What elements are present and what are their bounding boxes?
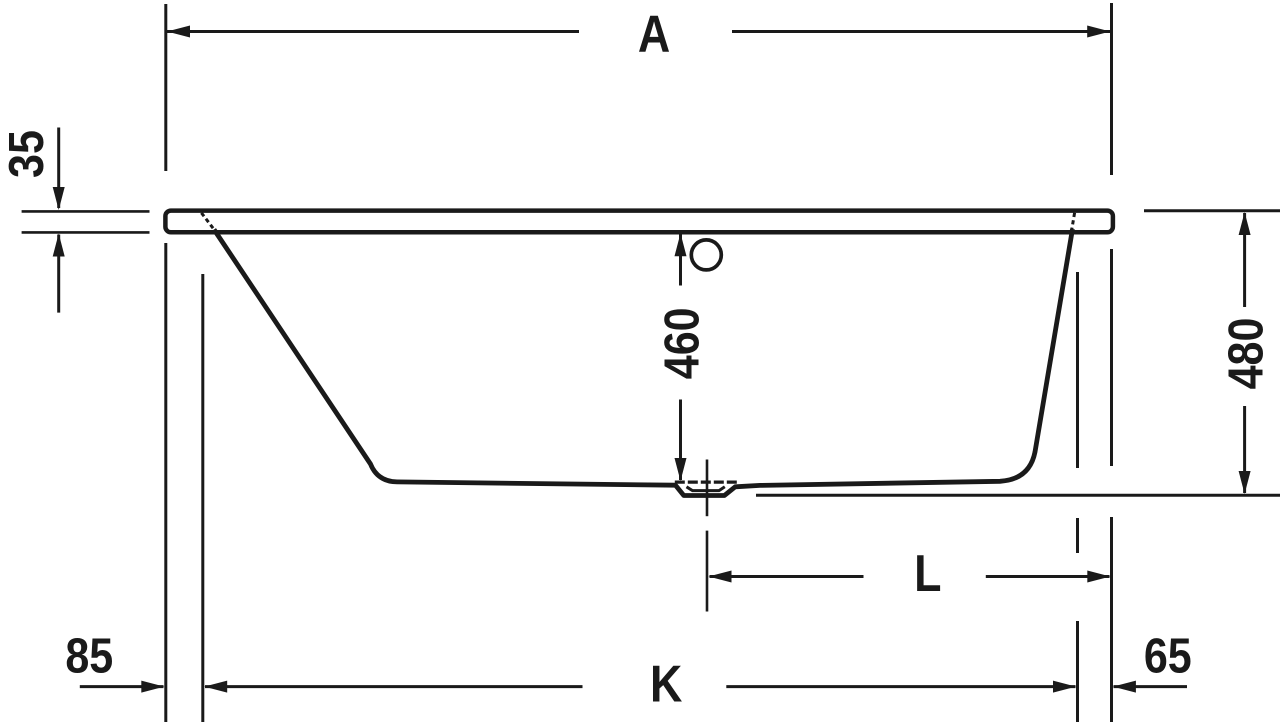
- svg-text:35: 35: [0, 130, 54, 178]
- svg-text:460: 460: [653, 307, 708, 379]
- svg-text:480: 480: [1217, 318, 1272, 390]
- svg-text:65: 65: [1144, 627, 1192, 682]
- svg-text:L: L: [914, 545, 941, 603]
- svg-text:A: A: [638, 6, 670, 64]
- svg-text:85: 85: [65, 627, 113, 682]
- svg-text:K: K: [650, 655, 682, 713]
